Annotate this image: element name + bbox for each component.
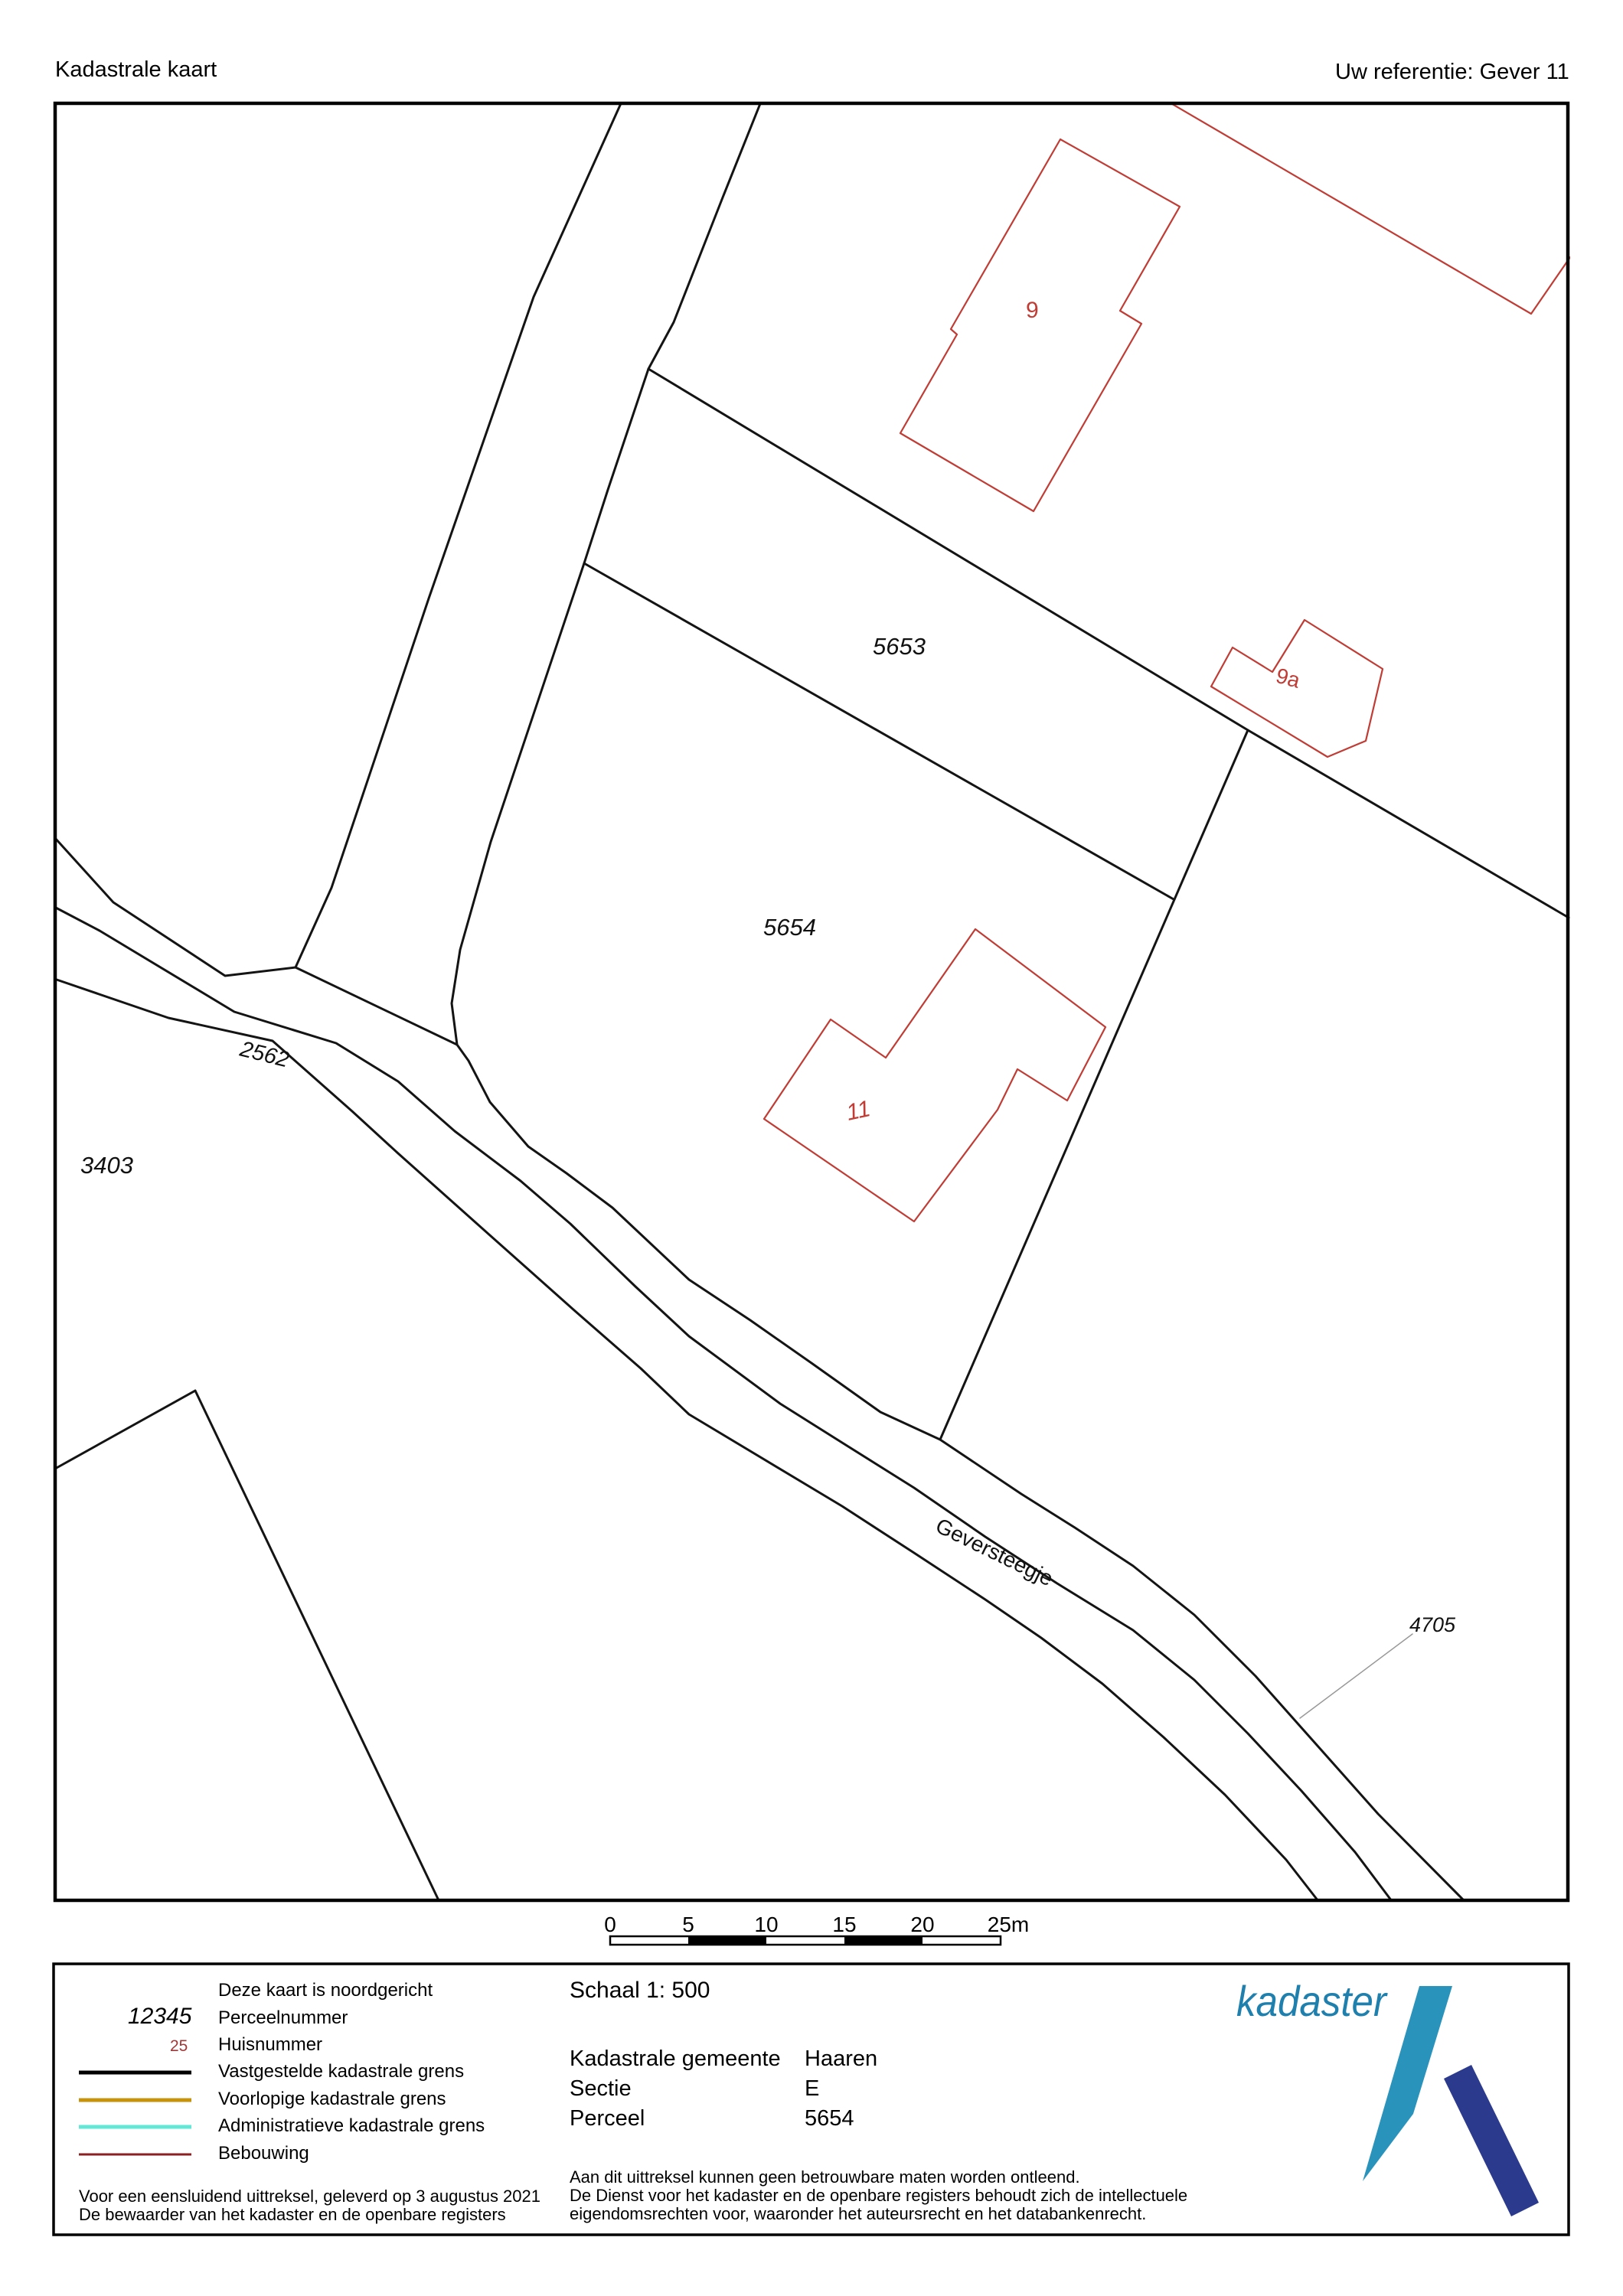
svg-text:5: 5 — [682, 1913, 694, 1936]
svg-text:25m: 25m — [988, 1913, 1029, 1936]
svg-text:4705: 4705 — [1409, 1613, 1456, 1636]
svg-text:15: 15 — [832, 1913, 856, 1936]
svg-text:20: 20 — [910, 1913, 934, 1936]
svg-text:2562: 2562 — [237, 1037, 291, 1073]
svg-text:0: 0 — [604, 1913, 616, 1936]
svg-text:Geversteegje: Geversteegje — [932, 1514, 1056, 1591]
svg-text:10: 10 — [754, 1913, 778, 1936]
svg-text:3403: 3403 — [80, 1152, 133, 1179]
svg-text:9: 9 — [1026, 298, 1039, 323]
svg-text:5653: 5653 — [873, 633, 926, 660]
svg-text:9a: 9a — [1273, 664, 1303, 693]
svg-text:kadaster: kadaster — [1236, 1977, 1388, 2025]
svg-text:11: 11 — [844, 1096, 873, 1126]
svg-text:5654: 5654 — [763, 914, 816, 941]
